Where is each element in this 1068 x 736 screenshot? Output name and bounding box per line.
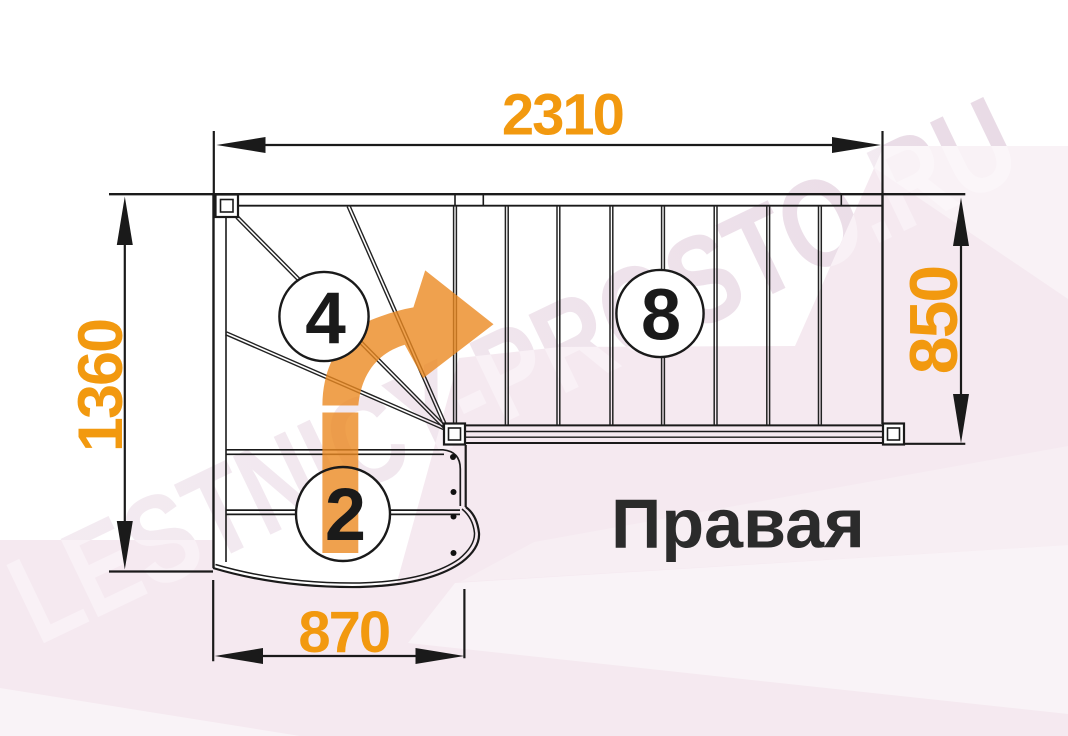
svg-text:8: 8 bbox=[641, 275, 681, 355]
svg-text:Правая: Правая bbox=[611, 485, 865, 563]
svg-text:4: 4 bbox=[305, 279, 346, 360]
svg-text:2: 2 bbox=[325, 473, 366, 556]
svg-text:850: 850 bbox=[896, 267, 972, 375]
svg-text:1360: 1360 bbox=[66, 320, 136, 452]
svg-text:870: 870 bbox=[298, 600, 389, 665]
svg-text:2310: 2310 bbox=[502, 83, 623, 148]
